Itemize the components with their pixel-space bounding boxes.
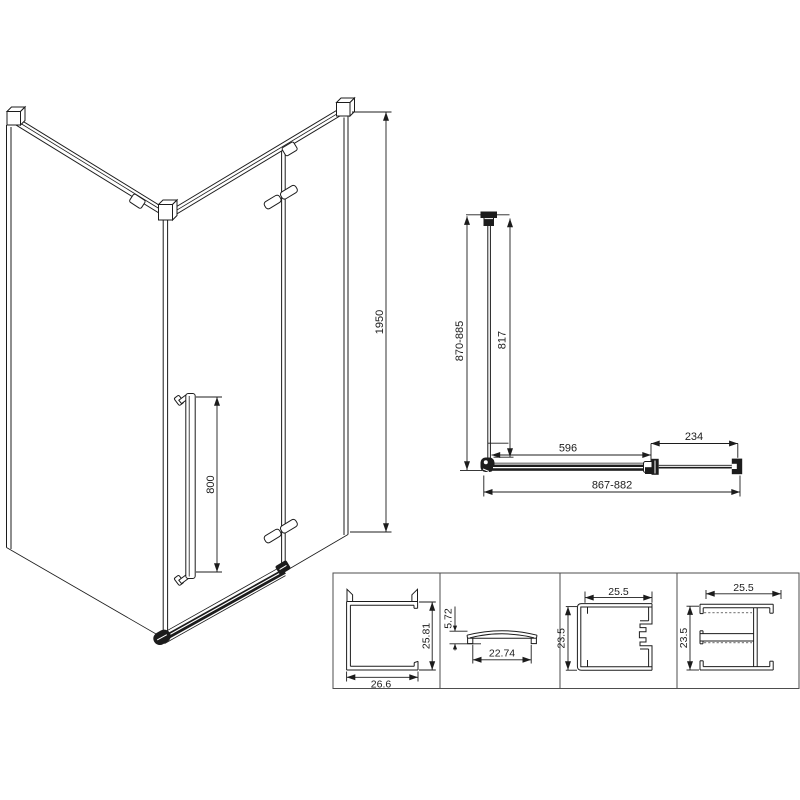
dimension-width-overall: 867-882 bbox=[484, 476, 740, 497]
dimension-p3-height: 23.5 bbox=[556, 607, 578, 671]
dimension-p2-width: 22.74 bbox=[473, 645, 531, 664]
bottom-rail bbox=[151, 560, 291, 647]
dimension-total-height: 1950 bbox=[350, 112, 392, 532]
dimension-handle-height: 800 bbox=[196, 397, 222, 572]
door-panel-label: 234 bbox=[685, 431, 703, 443]
profile-bottom-rail-section: 25.81 26.6 bbox=[347, 589, 436, 690]
technical-drawing-canvas: 800 1950 bbox=[0, 0, 800, 800]
p4-height-label: 23.5 bbox=[678, 628, 690, 649]
p1-width-label: 26.6 bbox=[371, 679, 392, 691]
wall-bracket-plan bbox=[481, 212, 498, 227]
dimension-p4-width: 25.5 bbox=[706, 582, 781, 599]
p3-height-label: 23.5 bbox=[556, 628, 568, 649]
top-rail-right bbox=[170, 106, 344, 218]
door-handle bbox=[174, 394, 195, 586]
dimension-p1-width: 26.6 bbox=[347, 672, 418, 691]
isometric-view: 800 1950 bbox=[7, 98, 392, 647]
corner-post bbox=[163, 220, 167, 636]
p4-width-label: 25.5 bbox=[733, 582, 754, 594]
wall-profile-end-plan bbox=[732, 459, 742, 475]
dimension-p4-height: 23.5 bbox=[678, 606, 699, 670]
door-hinge-bottom bbox=[263, 518, 298, 544]
corner-floor-cap bbox=[151, 627, 173, 647]
fixed-panel-rail-plan bbox=[493, 463, 652, 471]
width-overall-label: 867-882 bbox=[592, 479, 632, 491]
wall-bracket-left bbox=[7, 107, 25, 125]
p2-width-label: 22.74 bbox=[489, 648, 515, 660]
dimension-p1-height: 25.81 bbox=[419, 602, 436, 670]
side-panel-plan bbox=[488, 226, 491, 459]
total-height-label: 1950 bbox=[374, 310, 386, 334]
depth-glass-label: 817 bbox=[497, 331, 509, 349]
profile-wall-section-b: 25.5 23.5 bbox=[678, 582, 781, 670]
p1-height-label: 25.81 bbox=[421, 623, 433, 649]
profile-sections: 25.81 26.6 bbox=[333, 573, 799, 691]
corner-connector-top bbox=[159, 200, 178, 220]
dimension-p3-width: 25.5 bbox=[585, 586, 652, 603]
wall-bracket-right bbox=[337, 98, 355, 116]
door-hinge-top bbox=[263, 184, 298, 210]
dimension-depth-glass: 817 bbox=[494, 219, 514, 458]
handle-height-label: 800 bbox=[205, 475, 217, 493]
dimension-door-panel: 234 bbox=[488, 431, 738, 458]
p3-width-label: 25.5 bbox=[608, 586, 629, 598]
p2-height-label: 5.72 bbox=[443, 608, 455, 629]
dimension-p2-height: 5.72 bbox=[443, 607, 482, 651]
depth-overall-label: 870-885 bbox=[454, 321, 466, 361]
dimension-fixed-panel: 596 bbox=[492, 443, 652, 462]
technical-drawing-page: 800 1950 bbox=[0, 0, 800, 800]
profile-wall-section-a: 25.5 23.5 bbox=[556, 586, 653, 670]
plan-view: 870-885 817 596 234 867-882 bbox=[454, 212, 742, 497]
dimension-depth-overall: 870-885 bbox=[454, 216, 482, 470]
door-pivot-edge bbox=[282, 149, 286, 569]
corner-joint-plan bbox=[481, 458, 495, 473]
profile-cover-cap-section: 5.72 22.74 bbox=[443, 607, 538, 664]
fixed-panel-label: 596 bbox=[559, 443, 577, 455]
right-wall-profile bbox=[287, 116, 349, 571]
door-panel-line-plan bbox=[659, 465, 733, 467]
